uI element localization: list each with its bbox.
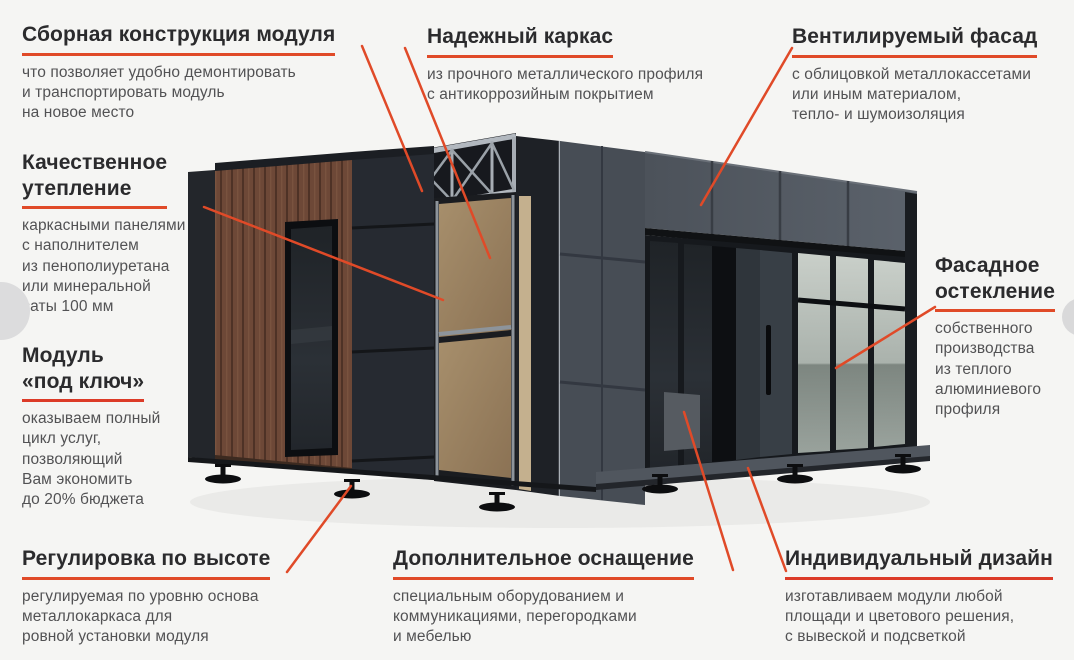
label-assembly-heading: Сборная конструкция модуля [22, 22, 335, 56]
label-equipment-body: специальным оборудованием и коммуникация… [393, 587, 694, 647]
callout-line-vent-facade [701, 48, 792, 205]
label-vent-facade-heading: Вентилируемый фасад [792, 24, 1037, 58]
label-assembly: Сборная конструкция модуля что позволяет… [22, 22, 368, 123]
label-turnkey: Модуль «под ключ» оказываем полный цикл … [22, 343, 160, 510]
label-design-body: изготавливаем модули любой площади и цве… [785, 587, 1053, 647]
label-equipment-heading: Дополнительное оснащение [393, 546, 694, 580]
label-insulation-body: каркасными панелями с наполнителем из пе… [22, 216, 186, 317]
label-glazing-body: собственного производства из теплого алю… [935, 319, 1055, 420]
label-vent-facade: Вентилируемый фасад с облицовкой металло… [792, 24, 1037, 125]
label-glazing-heading: Фасадное остекление [935, 253, 1055, 312]
label-glazing: Фасадное остекление собственного произво… [935, 253, 1055, 420]
infographic-canvas: Сборная конструкция модуля что позволяет… [0, 0, 1074, 660]
label-equipment: Дополнительное оснащение специальным обо… [393, 546, 694, 647]
callout-line-insulation [204, 207, 443, 300]
callout-line-glazing [836, 307, 935, 368]
label-frame-body: из прочного металлического профиля с ант… [427, 65, 703, 105]
label-turnkey-heading: Модуль «под ключ» [22, 343, 144, 402]
label-vent-facade-body: с облицовкой металлокассетами или иным м… [792, 65, 1037, 125]
callout-line-height-adjust [287, 486, 351, 572]
label-height-adjust-body: регулируемая по уровню основа металлокар… [22, 587, 270, 647]
label-insulation: Качественное утепление каркасными панеля… [22, 150, 186, 317]
label-assembly-body: что позволяет удобно демонтировать и тра… [22, 63, 368, 123]
label-design-heading: Индивидуальный дизайн [785, 546, 1053, 580]
label-height-adjust-heading: Регулировка по высоте [22, 546, 270, 580]
label-insulation-heading: Качественное утепление [22, 150, 167, 209]
label-frame-heading: Надежный каркас [427, 24, 613, 58]
label-turnkey-body: оказываем полный цикл услуг, позволяющий… [22, 409, 160, 510]
callout-line-design [748, 468, 786, 571]
label-height-adjust: Регулировка по высоте регулируемая по ур… [22, 546, 270, 647]
label-design: Индивидуальный дизайн изготавливаем моду… [785, 546, 1053, 647]
label-frame: Надежный каркас из прочного металлическо… [427, 24, 703, 105]
